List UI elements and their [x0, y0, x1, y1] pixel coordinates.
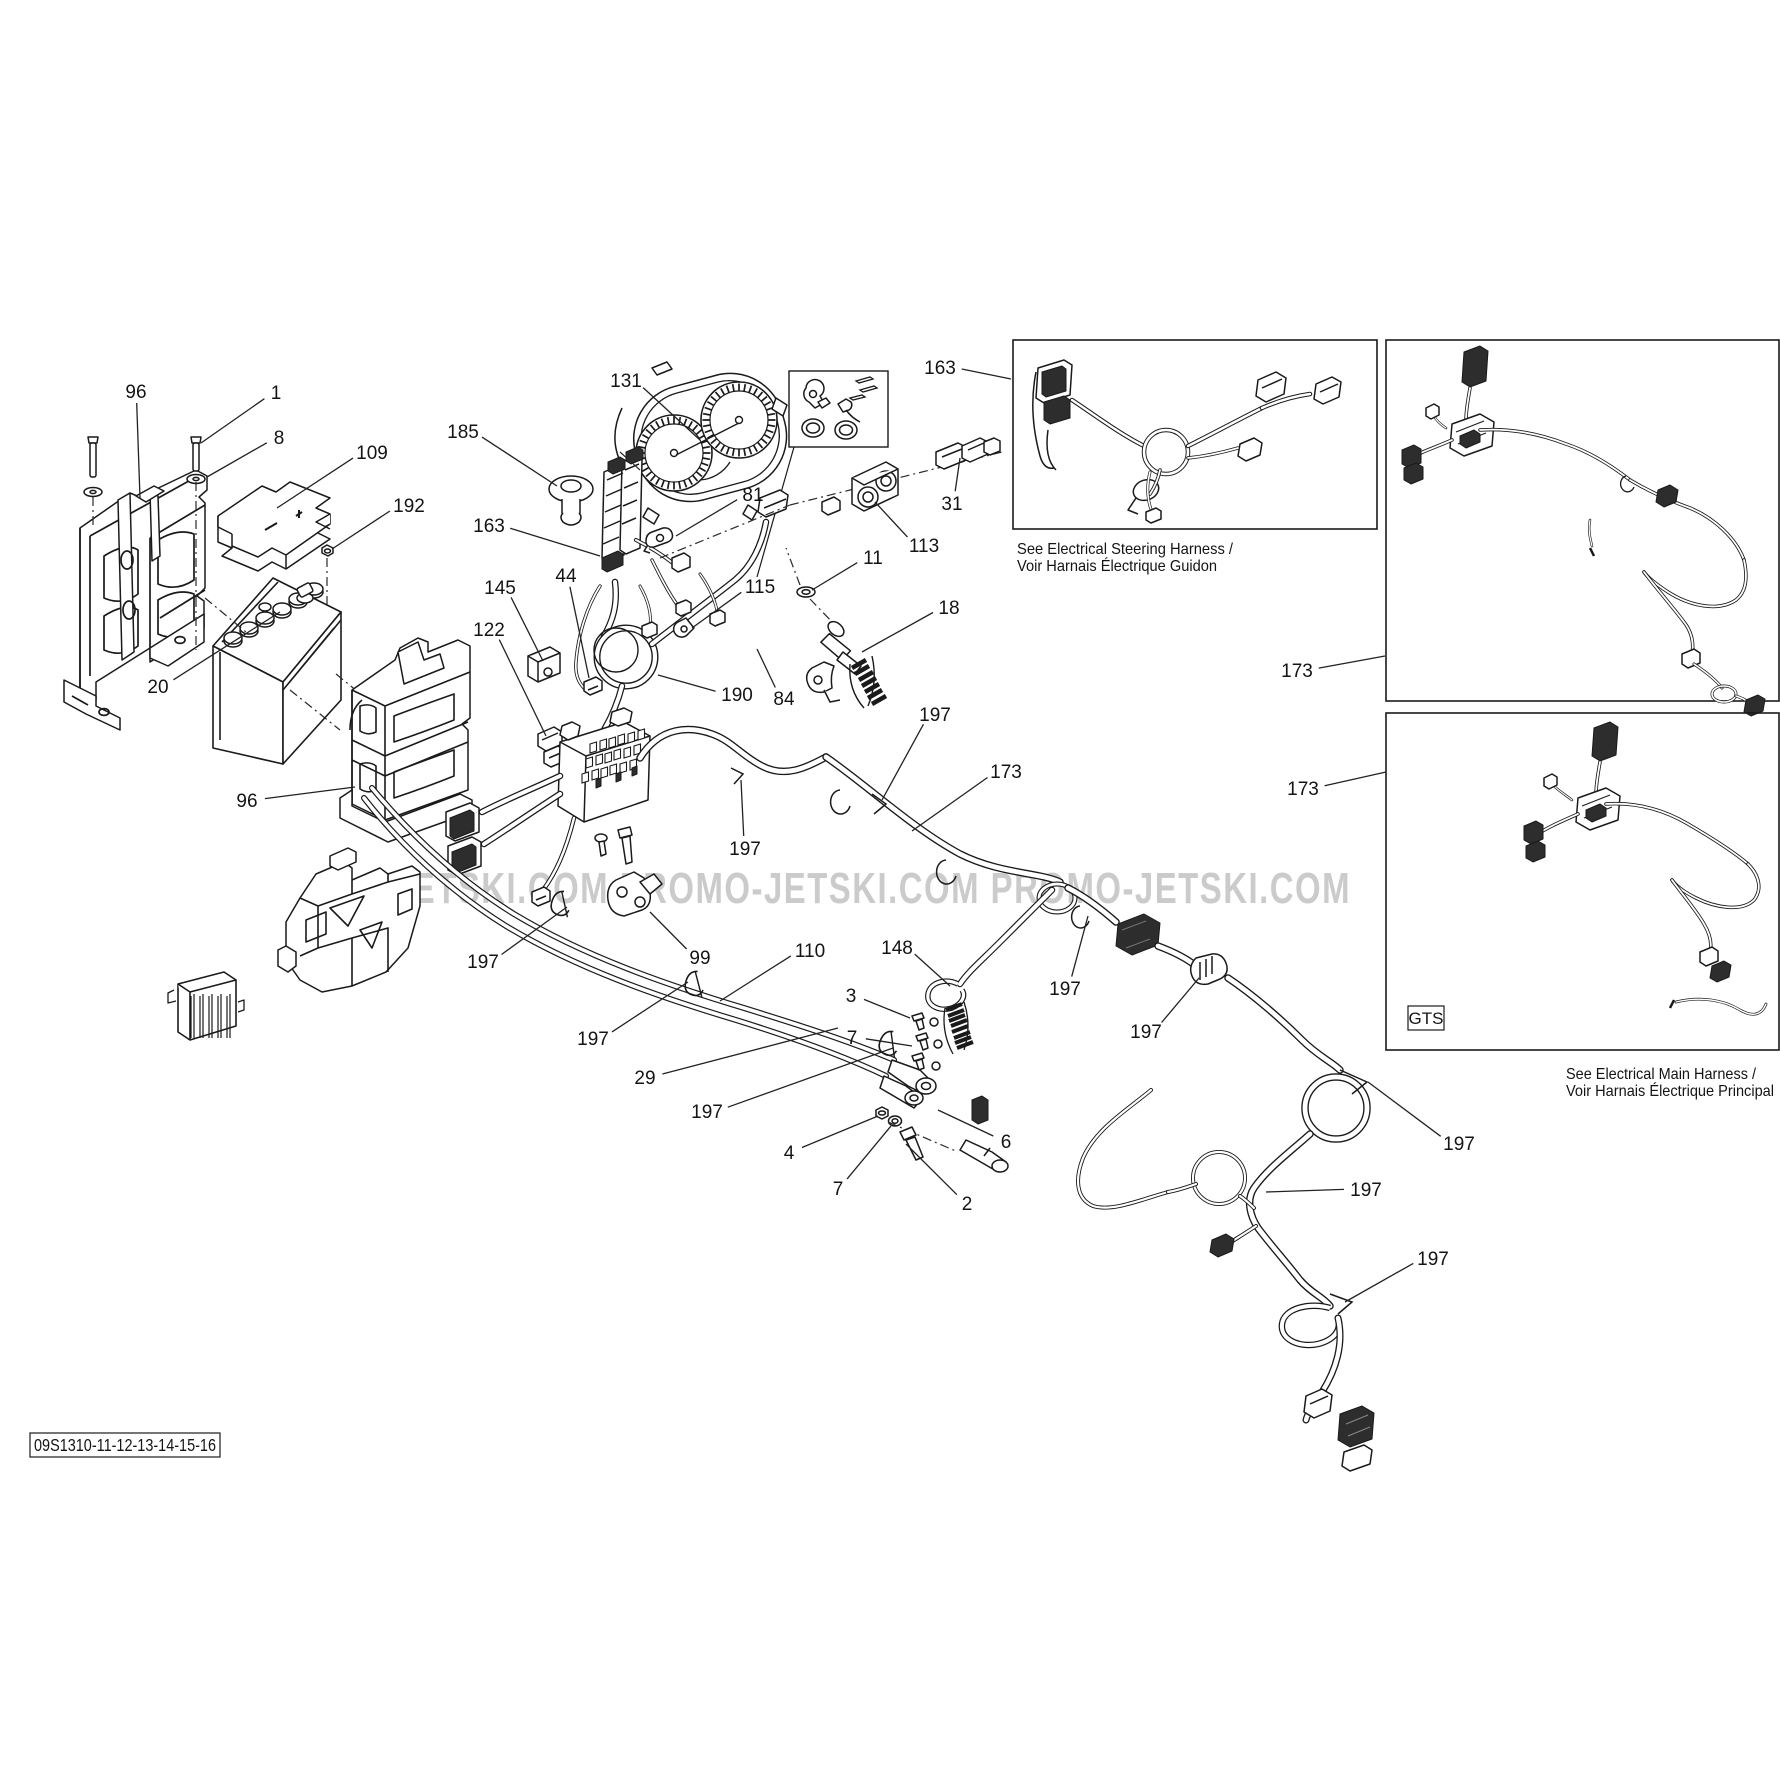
svg-text:Voir Harnais Électrique Guidon: Voir Harnais Électrique Guidon	[1017, 556, 1217, 575]
svg-text:96: 96	[236, 791, 257, 812]
svg-text:6: 6	[1001, 1132, 1012, 1153]
svg-text:197: 197	[691, 1102, 723, 1123]
svg-text:145: 145	[484, 578, 516, 599]
svg-text:09S1310-11-12-13-14-15-16: 09S1310-11-12-13-14-15-16	[34, 1435, 216, 1455]
svg-text:197: 197	[1130, 1022, 1162, 1043]
svg-text:122: 122	[473, 620, 505, 641]
svg-text:148: 148	[881, 938, 913, 959]
svg-text:8: 8	[274, 428, 285, 449]
svg-text:113: 113	[909, 536, 939, 557]
svg-text:84: 84	[773, 689, 795, 710]
svg-text:109: 109	[356, 443, 388, 464]
svg-text:29: 29	[634, 1068, 655, 1089]
svg-text:163: 163	[473, 516, 505, 537]
svg-text:197: 197	[1417, 1249, 1449, 1270]
svg-text:115: 115	[745, 577, 775, 598]
svg-text:Voir Harnais Électrique Princi: Voir Harnais Électrique Principal	[1566, 1081, 1774, 1100]
svg-text:96: 96	[125, 382, 146, 403]
svg-text:173: 173	[1281, 661, 1313, 682]
svg-text:197: 197	[919, 705, 951, 726]
svg-text:99: 99	[689, 948, 710, 969]
svg-text:185: 185	[447, 422, 479, 443]
svg-text:197: 197	[729, 839, 761, 860]
svg-text:173: 173	[990, 762, 1022, 783]
svg-text:See Electrical Main Harness /: See Electrical Main Harness /	[1566, 1066, 1757, 1083]
svg-text:163: 163	[924, 358, 956, 379]
svg-text:4: 4	[784, 1143, 795, 1164]
svg-text:3: 3	[846, 986, 857, 1007]
svg-text:197: 197	[1049, 979, 1081, 1000]
svg-text:2: 2	[962, 1194, 973, 1215]
svg-text:190: 190	[721, 685, 753, 706]
svg-text:197: 197	[467, 952, 499, 973]
svg-text:31: 31	[941, 494, 962, 515]
svg-text:197: 197	[1443, 1134, 1475, 1155]
svg-text:20: 20	[147, 677, 168, 698]
svg-text:197: 197	[577, 1029, 609, 1050]
svg-text:1: 1	[271, 383, 282, 404]
svg-text:110: 110	[795, 941, 825, 962]
svg-text:81: 81	[742, 485, 763, 506]
svg-text:7: 7	[847, 1028, 858, 1049]
svg-text:192: 192	[393, 496, 425, 517]
svg-text:GTS: GTS	[1409, 1009, 1444, 1028]
svg-text:44: 44	[555, 566, 577, 587]
svg-text:7: 7	[833, 1179, 844, 1200]
svg-text:173: 173	[1287, 779, 1319, 800]
svg-text:See Electrical Steering Harnes: See Electrical Steering Harness /	[1017, 541, 1234, 558]
svg-text:197: 197	[1350, 1180, 1382, 1201]
svg-text:11: 11	[863, 548, 883, 569]
svg-text:131: 131	[610, 371, 642, 392]
svg-text:18: 18	[938, 598, 959, 619]
